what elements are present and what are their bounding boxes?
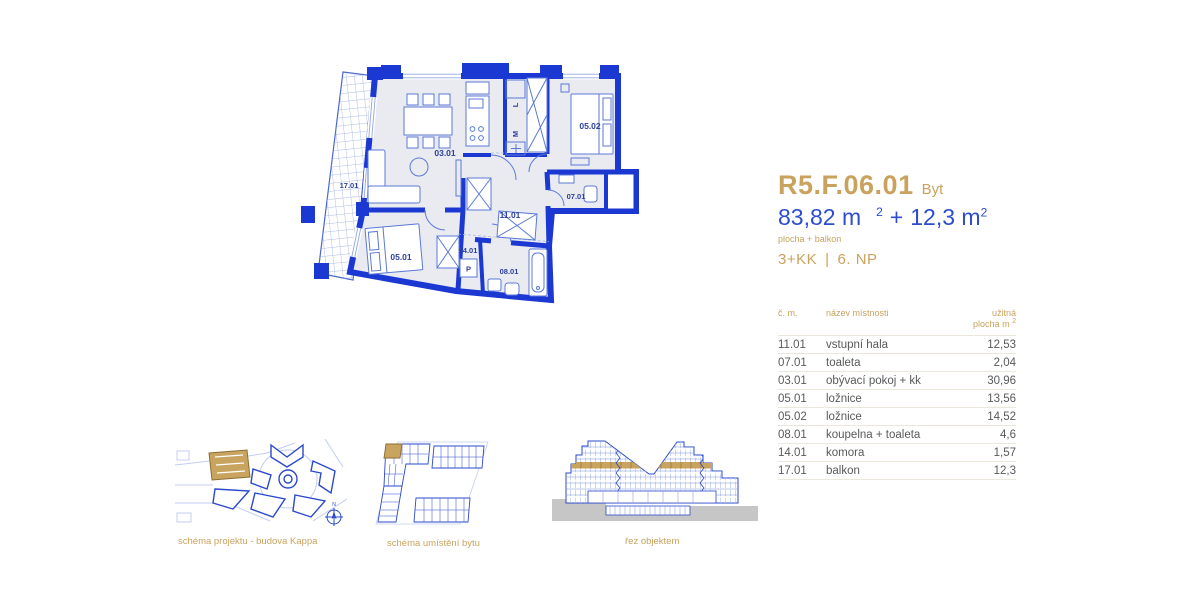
room-name: komora [826,444,964,462]
col-header-area: užitnáplocha m 2 [964,308,1016,336]
disposition-line: 3+KK|6. NP [778,251,1016,268]
col-header-area-sup: 2 [1012,318,1016,325]
disposition-separator: | [825,251,829,268]
room-id: 14.01 [778,444,826,462]
building-section-diagram: řez objektem [548,433,763,535]
room-area: 1,57 [964,444,1016,462]
col-header-number: č. m. [778,308,826,336]
site-plan-diagram: N schéma projektu - budova Kappa [175,437,347,537]
room-label-bathroom: 08.01 [500,267,519,276]
room-id: 03.01 [778,372,826,390]
area-balcony-sup: 2 [981,205,988,219]
area-note: plocha + balkon [778,234,1016,244]
room-label-storage: 14.01 [459,246,478,255]
room-label-bedroom2: 05.02 [579,121,601,131]
area-main-sup: 2 [876,205,883,219]
room-area: 14,52 [964,408,1016,426]
table-row: 14.01komora1,57 [778,444,1016,462]
brochure-page: L M P 03.01 05.02 07.01 11.01 05.01 [0,0,1200,600]
wall-stub [314,263,329,279]
room-name: koupelna + toaleta [826,426,964,444]
rooms-table: č. m. název místnosti užitnáplocha m 2 1… [778,308,1016,480]
col-header-area-line1: užitná [992,308,1016,318]
washer-label: P [466,265,471,274]
table-row: 07.01toaleta2,04 [778,354,1016,372]
room-label-hall: 11.01 [500,210,521,220]
disposition: 3+KK [778,251,817,268]
room-area: 12,53 [964,336,1016,354]
table-row: 05.01ložnice13,56 [778,390,1016,408]
room-name: obývací pokoj + kk [826,372,964,390]
unit-location-diagram: schéma umístění bytu [372,438,492,533]
room-id: 05.01 [778,390,826,408]
room-area: 12,3 [964,462,1016,480]
wall-stub [301,206,315,223]
col-header-name: název místnosti [826,308,964,336]
room-label-bedroom1: 05.01 [390,252,412,262]
room-id: 07.01 [778,354,826,372]
table-row: 08.01koupelna + toaleta4,6 [778,426,1016,444]
room-area: 2,04 [964,354,1016,372]
bedroom1-furniture [365,224,423,275]
rooms-table-header: č. m. název místnosti užitnáplocha m 2 [778,308,1016,336]
site-plan-caption: schéma projektu - budova Kappa [178,536,317,547]
fridge-label: L [511,102,520,107]
table-row: 11.01vstupní hala12,53 [778,336,1016,354]
room-id: 05.02 [778,408,826,426]
area-balcony: 12,3 m [910,204,980,230]
compass-north-label: N [332,502,336,508]
room-id: 17.01 [778,462,826,480]
room-area: 13,56 [964,390,1016,408]
room-area: 30,96 [964,372,1016,390]
unit-type-label: Byt [922,181,944,198]
table-row: 17.01balkon12,3 [778,462,1016,480]
kappa-building [209,450,250,480]
area-line: 83,82 m2+12,3 m2 [778,204,1016,231]
room-name: ložnice [826,390,964,408]
table-row: 05.02ložnice14,52 [778,408,1016,426]
room-area: 4,6 [964,426,1016,444]
room-label-toilet: 07.01 [567,192,586,201]
unit-title-row: R5.F.06.01Byt [778,170,1016,201]
room-label-living: 03.01 [434,148,456,158]
area-plus: + [890,204,903,230]
room-id: 08.01 [778,426,826,444]
unit-location-caption: schéma umístění bytu [387,538,480,549]
col-header-area-line2: plocha m [973,319,1010,329]
room-label-balcony: 17.01 [340,181,359,190]
room-name: toaleta [826,354,964,372]
building-section-caption: řez objektem [625,536,679,547]
table-row: 03.01obývací pokoj + kk30,96 [778,372,1016,390]
unit-info-panel: R5.F.06.01Byt 83,82 m2+12,3 m2 plocha + … [778,170,1016,480]
unit-code: R5.F.06.01 [778,170,914,200]
room-name: vstupní hala [826,336,964,354]
highlighted-floor-band [566,462,740,469]
room-name: balkon [826,462,964,480]
area-main: 83,82 m [778,204,861,230]
exterior-niche [608,175,634,209]
washer: P [460,259,477,277]
floor-plan: L M P 03.01 05.02 07.01 11.01 05.01 [295,50,660,315]
highlighted-unit [384,444,402,458]
microwave-label: M [511,131,520,137]
room-id: 11.01 [778,336,826,354]
floor-level: 6. NP [838,251,878,268]
compass-icon: N [325,502,343,526]
room-name: ložnice [826,408,964,426]
